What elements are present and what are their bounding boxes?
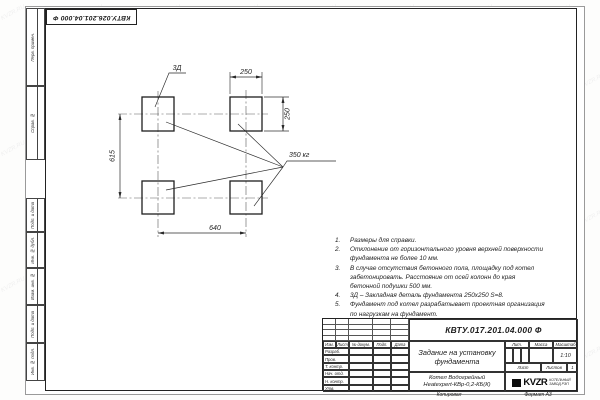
drawing-title: Задание на установку фундамента [409, 341, 505, 372]
kvzr-logo-text: KVZR [523, 377, 547, 388]
sheets-value: 1 [567, 363, 578, 372]
kvzr-logo-icon [512, 378, 521, 387]
sig-row-n-kontr: Н. контр. [323, 377, 409, 384]
label-embed-detail: 3Д [173, 65, 182, 72]
lit-cell-3 [521, 348, 529, 363]
note-item: 2.Отклонение от горизонтального уровня в… [335, 245, 547, 263]
dimension-lines [120, 77, 283, 233]
center-lines [118, 90, 268, 237]
note-item: 1.Размеры для справки. [335, 236, 547, 245]
footer-copied-label: Копировал [437, 392, 462, 398]
title-block: Изм. Лист № докум. Подп. Дата Разраб. Пр… [322, 318, 577, 391]
rev-col-data: Дата [391, 341, 409, 348]
rev-col-docum: № докум. [349, 341, 373, 348]
lit-header: Лит. [505, 341, 529, 348]
note-item: 3.В случае отсутствия бетонного пола, пл… [335, 264, 547, 292]
foundation-pads [142, 97, 262, 214]
lit-cell-2 [513, 348, 521, 363]
doc-number: КВТУ.017.201.04.000 Ф [409, 319, 578, 341]
kvzr-logo-subtext: КОТЕЛЬНЫЙ ЗАВОД РЭП [549, 378, 570, 386]
scale-value: 1:10 [553, 348, 578, 363]
extension-lines [230, 72, 289, 131]
sheets-label: Листов [541, 363, 567, 372]
sig-row-nach-otd: Нач. отд. [323, 370, 409, 377]
mass-header: Масса [529, 341, 553, 348]
mass-cell [529, 348, 553, 363]
revision-grid [323, 319, 409, 341]
label-load: 350 кг [289, 152, 309, 159]
dim-pad-height: 250 [285, 108, 292, 120]
footer-format-label: Формат А3 [524, 392, 551, 398]
scale-header: Масштаб [553, 341, 578, 348]
sheet-label: Лист [505, 363, 541, 372]
dim-span-vertical: 615 [110, 150, 117, 162]
rev-col-izm: Изм. [323, 341, 336, 348]
dim-pad-width: 250 [240, 69, 252, 76]
drawing-sheet-page: KVZR.RUKVZR.RUKVZR.RUKVZR.RUKVZR.RUKVZR.… [0, 0, 600, 400]
note-item: 4.3Д – Закладная деталь фундамента 250х2… [335, 291, 547, 300]
company-logo: KVZR КОТЕЛЬНЫЙ ЗАВОД РЭП [505, 372, 578, 392]
note-item: 5.Фундамент под котел разрабатывает прое… [335, 300, 547, 318]
notes-list: 1.Размеры для справки. 2.Отклонение от г… [335, 236, 547, 319]
rev-col-podp: Подп. [373, 341, 391, 348]
revision-header-row: Изм. Лист № докум. Подп. Дата [323, 341, 409, 348]
sig-row-utv: Утв. [323, 385, 409, 392]
lit-cell-1 [505, 348, 513, 363]
leader-load-shelf [283, 161, 336, 167]
sig-row-t-kontr: Т. контр. [323, 363, 409, 370]
product-name: Котел Водогрейный Heatexpert-КВр-0,2-КБ(… [409, 372, 505, 392]
rev-col-list: Лист [336, 341, 349, 348]
sig-row-razrab: Разраб. [323, 348, 409, 355]
sig-row-prov: Пров. [323, 355, 409, 362]
leader-embed-detail [155, 73, 186, 107]
dim-span-horizontal: 640 [209, 225, 221, 232]
leader-lines [155, 73, 336, 206]
